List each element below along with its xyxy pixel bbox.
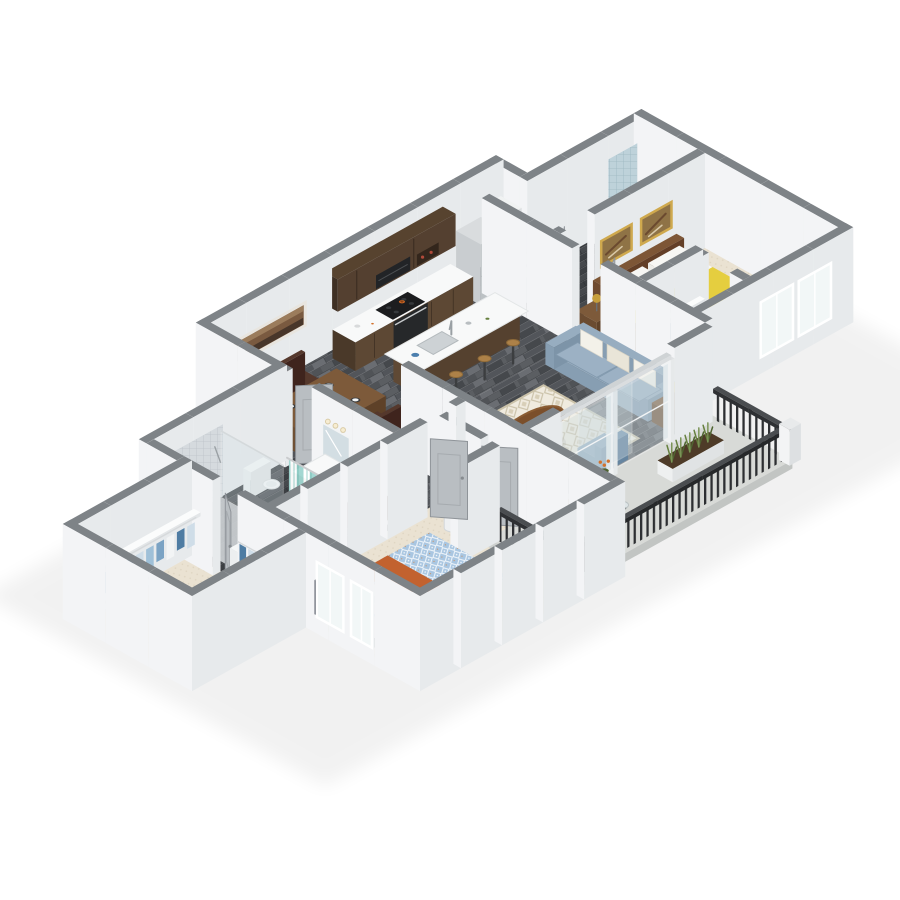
stool-seat bbox=[450, 371, 463, 377]
side bbox=[184, 592, 192, 691]
closet-front-wall bbox=[184, 571, 230, 692]
bowl bbox=[354, 324, 360, 327]
ellipse bbox=[409, 302, 414, 305]
front bbox=[790, 423, 801, 465]
floorplan-page bbox=[0, 0, 900, 900]
bottle bbox=[421, 255, 424, 258]
side bbox=[453, 569, 461, 668]
ellipse bbox=[401, 298, 406, 301]
bedroom1-window bbox=[351, 581, 372, 648]
stool-seat bbox=[478, 355, 491, 361]
ellipse bbox=[386, 306, 391, 309]
bedroom1-door bbox=[430, 439, 467, 520]
side bbox=[380, 440, 388, 539]
gold-lamp bbox=[592, 294, 601, 303]
hanging-clothes bbox=[167, 534, 175, 561]
side bbox=[577, 500, 585, 599]
stool-seat bbox=[507, 339, 520, 345]
orange-flower bbox=[603, 463, 606, 466]
side bbox=[495, 546, 503, 645]
side bbox=[412, 592, 420, 691]
bottle bbox=[430, 251, 433, 254]
plate bbox=[352, 398, 358, 401]
front bbox=[671, 358, 675, 444]
vanity-light bbox=[341, 428, 346, 433]
vanity-light bbox=[333, 423, 338, 428]
blue-dish bbox=[411, 353, 419, 357]
ellipse bbox=[371, 323, 374, 325]
vanity-light bbox=[325, 419, 330, 424]
orange-flower bbox=[599, 460, 602, 463]
floorplan-3d-render bbox=[0, 0, 900, 900]
hanging-clothes bbox=[187, 522, 195, 549]
ellipse bbox=[400, 301, 403, 303]
side bbox=[536, 523, 544, 622]
pot bbox=[465, 322, 471, 325]
door-knob bbox=[461, 477, 464, 480]
greens bbox=[485, 318, 489, 320]
ellipse bbox=[394, 311, 399, 314]
front bbox=[213, 476, 221, 575]
balcony-corner-post bbox=[779, 418, 801, 466]
orange-flower bbox=[607, 459, 610, 462]
side bbox=[779, 424, 790, 466]
